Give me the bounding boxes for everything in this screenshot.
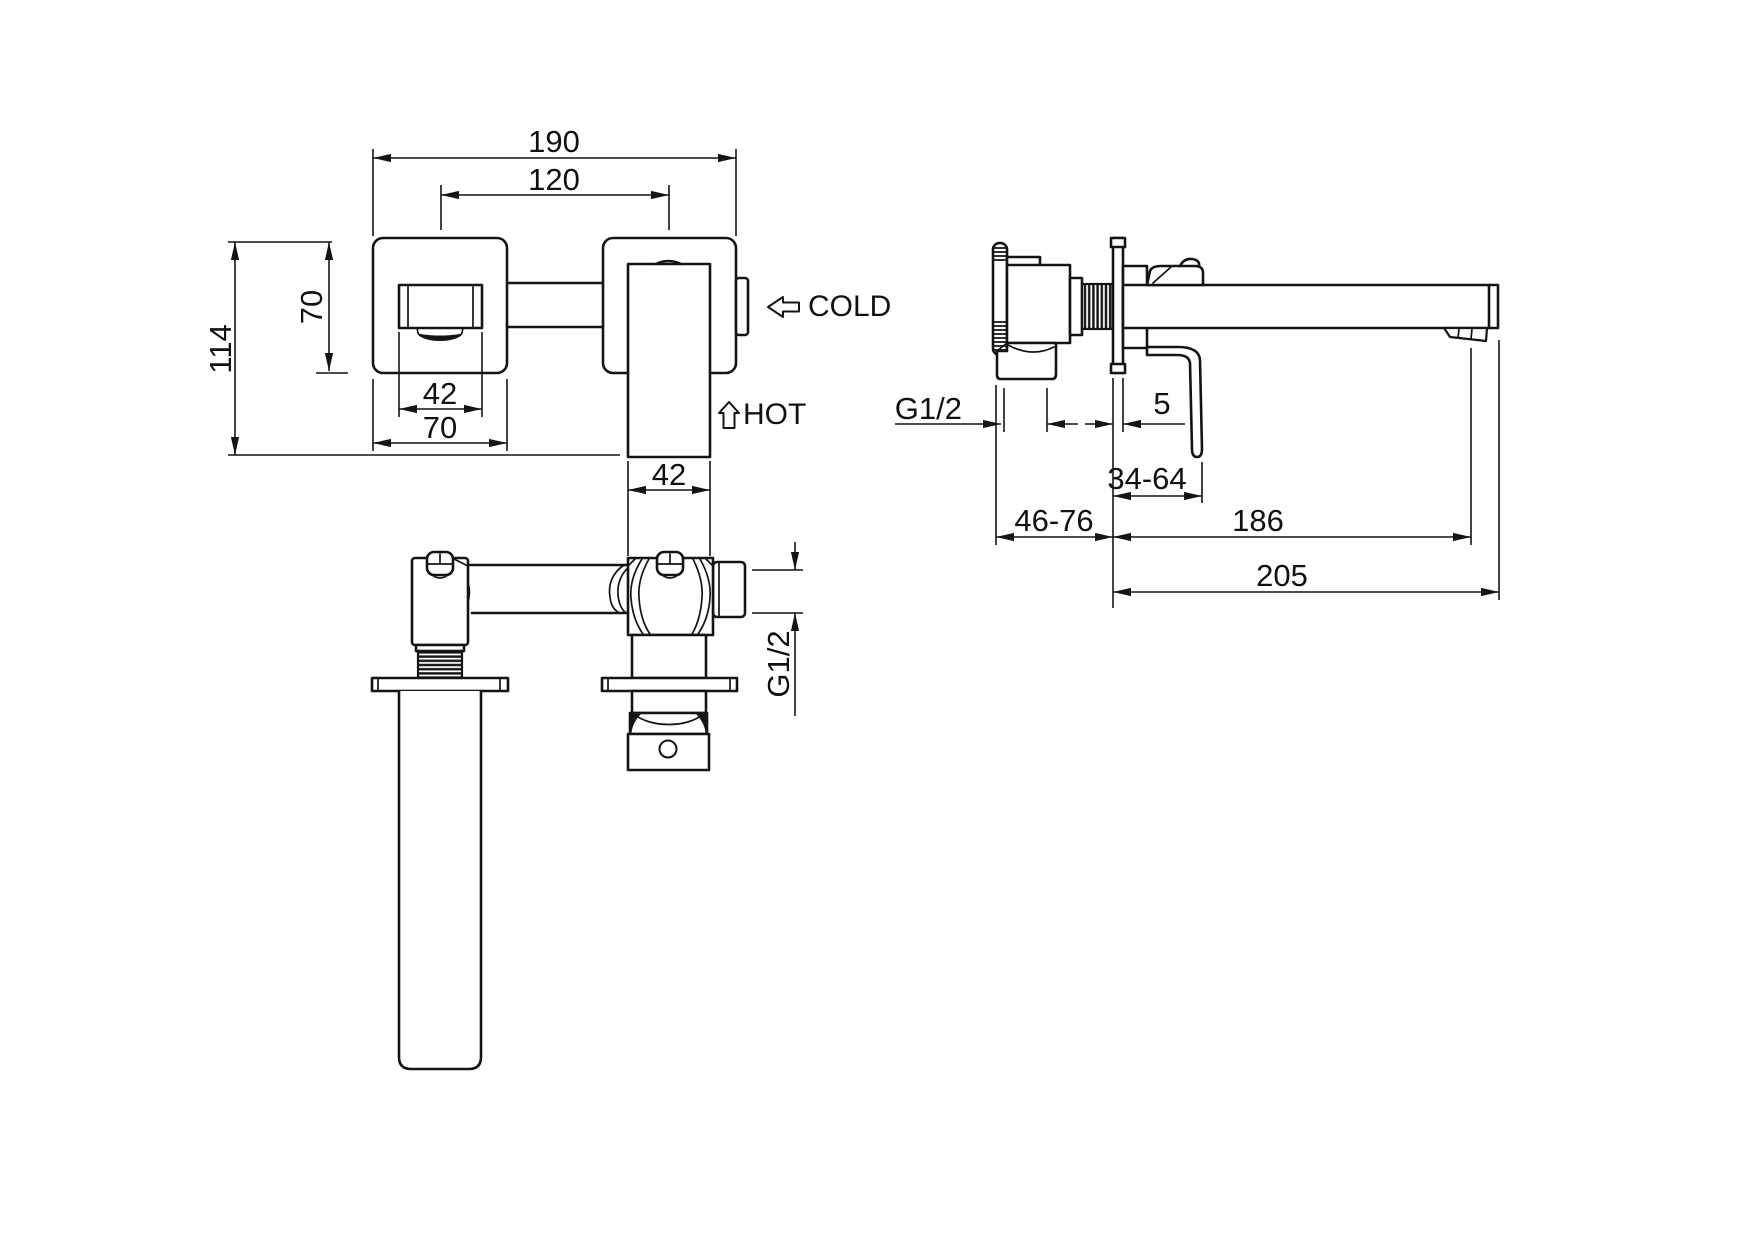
cross-tube bbox=[445, 565, 631, 613]
dim-plate-width: 70 bbox=[423, 410, 457, 445]
handle-body-bottom bbox=[628, 552, 745, 678]
screw-right bbox=[657, 552, 683, 578]
threaded-rod bbox=[1082, 284, 1113, 329]
front-view: 190 120 114 70 42 70 bbox=[203, 124, 891, 556]
mixer-handle-front bbox=[628, 261, 710, 457]
cold-label: COLD bbox=[808, 290, 891, 323]
mounting-stud bbox=[993, 243, 1007, 355]
dim-spout-width: 42 bbox=[423, 376, 457, 411]
dim-spout-reach: 186 bbox=[1232, 503, 1284, 538]
dim-install-depth-range: 46-76 bbox=[1014, 503, 1093, 538]
handle-cartridge-bottom bbox=[628, 691, 709, 770]
spout-body-bottom bbox=[412, 552, 468, 678]
spout-flange bbox=[372, 678, 508, 691]
dim-inlet-thread: G1/2 bbox=[895, 391, 962, 426]
spout-wall-plate bbox=[373, 238, 507, 373]
spout-side bbox=[1123, 285, 1498, 341]
dim-outlet-thread: G1/2 bbox=[761, 630, 796, 697]
screw-left bbox=[427, 552, 453, 578]
dim-plate-height: 70 bbox=[294, 290, 329, 324]
hot-flow-arrow-icon bbox=[719, 402, 739, 428]
spout-tube-bottom bbox=[399, 691, 481, 1069]
valve-body-side bbox=[997, 257, 1113, 379]
dim-overall-depth: 205 bbox=[1256, 558, 1308, 593]
dim-handle-width: 42 bbox=[652, 457, 686, 492]
faucet-dimension-drawing: 190 120 114 70 42 70 bbox=[0, 0, 1754, 1241]
dim-plate-thickness: 5 bbox=[1153, 386, 1170, 421]
side-view: G1/2 5 34-64 46-76 186 bbox=[895, 238, 1499, 608]
connecting-pipe bbox=[507, 283, 603, 327]
handle-flange bbox=[602, 678, 737, 691]
dim-overall-width: 190 bbox=[528, 124, 580, 159]
cold-flow-arrow-icon bbox=[768, 297, 799, 317]
hot-inlet-port bbox=[713, 562, 745, 617]
bottom-view: G1/2 bbox=[372, 542, 803, 1069]
threaded-nipple bbox=[418, 651, 462, 678]
technical-drawing-page: 190 120 114 70 42 70 bbox=[0, 0, 1754, 1241]
dim-port-spacing: 120 bbox=[528, 162, 580, 197]
aerator-side bbox=[1444, 328, 1487, 341]
cold-inlet-tab bbox=[736, 278, 748, 335]
bottom-dimensions: G1/2 bbox=[752, 542, 803, 716]
elbow-outlet bbox=[997, 343, 1056, 379]
dim-handle-offset-range: 34-64 bbox=[1107, 461, 1186, 496]
dim-overall-height: 114 bbox=[203, 324, 238, 373]
hot-label: HOT bbox=[743, 398, 806, 431]
